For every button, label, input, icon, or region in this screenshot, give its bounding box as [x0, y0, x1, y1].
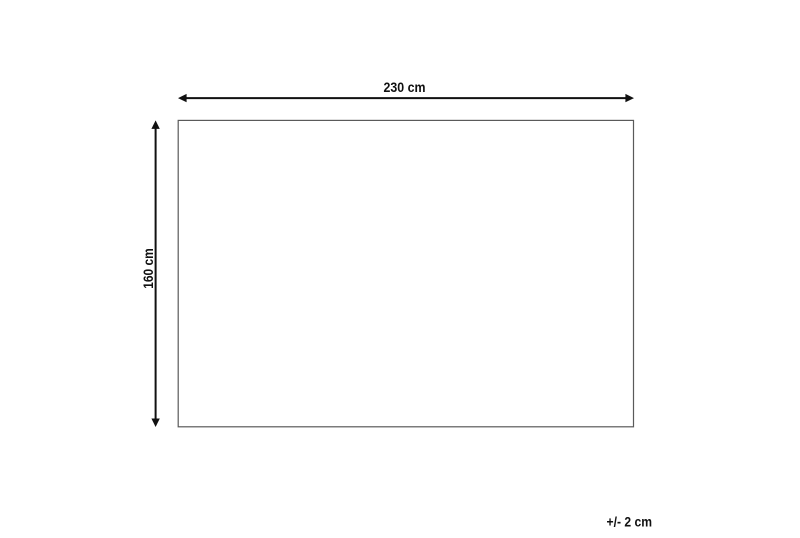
svg-text:+/- 2 cm: +/- 2 cm: [607, 515, 653, 530]
svg-text:230 cm: 230 cm: [384, 80, 426, 95]
svg-text:160 cm: 160 cm: [141, 248, 156, 289]
